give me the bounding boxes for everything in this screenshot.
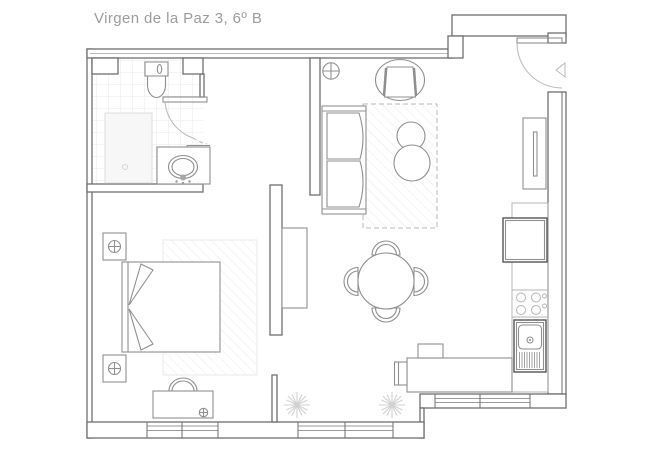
fridge <box>503 218 547 262</box>
tv-cabinet <box>523 118 546 189</box>
sofa <box>322 106 366 214</box>
toilet-cistern <box>145 62 168 76</box>
wall-living-west <box>310 58 320 195</box>
hob-4-burners <box>512 290 548 317</box>
bag-handle-inner <box>172 381 194 391</box>
sofa-cushion-top <box>327 113 363 159</box>
floor-plan-drawing <box>0 0 650 450</box>
toilet-bowl <box>148 76 166 98</box>
wall-step-top <box>448 36 463 58</box>
bag-handle-outer <box>169 378 197 391</box>
wall-bathroom-bottom <box>87 184 203 192</box>
bench-with-bag <box>153 378 213 418</box>
desk-area <box>395 344 513 392</box>
ceiling-light-icon <box>323 63 339 79</box>
wall-left <box>87 49 92 438</box>
armchair-seat <box>385 67 416 97</box>
sofa-cushion-bottom <box>327 161 363 207</box>
plant-left-icon <box>284 392 310 418</box>
kitchen-group <box>395 203 549 392</box>
bed-frame <box>122 262 220 352</box>
bench-lamp-icon <box>199 408 207 416</box>
armchair <box>376 60 425 101</box>
desk <box>407 358 512 392</box>
kitchen-sink <box>514 320 546 372</box>
dining-table <box>358 253 414 309</box>
table-lamp-top-icon <box>109 241 121 253</box>
wall-bedroom-stub <box>272 375 277 422</box>
entry-door <box>517 38 565 88</box>
table-lamp-bottom-icon <box>109 363 121 375</box>
round-side-table-large <box>394 145 430 181</box>
plant-right-icon <box>379 392 405 418</box>
wall-right <box>548 92 566 394</box>
wall-bathroom-niche-left <box>92 58 118 74</box>
desk-top-box <box>418 344 443 358</box>
desk-chair <box>395 362 408 385</box>
wall-bathroom-niche-right <box>183 58 203 74</box>
double-bed <box>122 262 220 352</box>
floor-plan-page: Virgen de la Paz 3, 6º B <box>0 0 650 450</box>
entry-door-swing-arc <box>517 43 562 88</box>
wall-bathroom-right <box>200 74 204 97</box>
wall-bottom-right <box>420 394 566 408</box>
wardrobe-cabinet <box>282 228 307 308</box>
wall-bottom-left <box>87 422 424 438</box>
sink-vanity <box>157 146 210 185</box>
shower-tray <box>105 113 152 183</box>
dining-group <box>344 241 428 322</box>
wall-bedroom-partition <box>270 185 282 335</box>
faucet-icon <box>180 175 186 181</box>
entry-door-stop-icon <box>556 63 565 77</box>
